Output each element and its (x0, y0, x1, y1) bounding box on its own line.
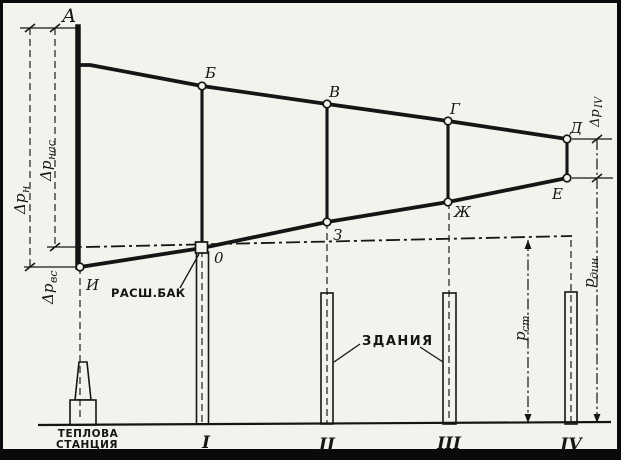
expansion-tank-symbol (196, 242, 208, 253)
point-label-e: Е (551, 185, 563, 203)
svg-text:IV: IV (594, 95, 605, 109)
point-label-g: Г (449, 100, 461, 118)
station-label-line2: СТАНЦИЯ (56, 439, 118, 451)
point-label-o: 0 (214, 249, 224, 267)
expansion-tank-label: РАСШ.БАК (111, 286, 186, 300)
svg-text:Δp: Δp (11, 193, 29, 215)
point-label-a: А (60, 5, 76, 27)
building-numeral-3: III (436, 434, 462, 454)
building-numeral-2: II (318, 435, 336, 455)
building-numeral-1: I (201, 433, 211, 453)
point-label-b: Б (204, 64, 216, 82)
building-numeral-4: IV (559, 435, 583, 455)
svg-text:ст: ст (519, 315, 532, 332)
svg-text:нас: нас (45, 140, 58, 160)
svg-text:н: н (19, 186, 32, 193)
buildings-label: ЗДАНИЯ (362, 334, 434, 349)
svg-text:Δp: Δp (588, 109, 603, 128)
point-label-d: Д (569, 119, 583, 137)
svg-text:дин: дин (588, 258, 601, 279)
svg-text:Δp: Δp (39, 283, 57, 305)
svg-text:вс: вс (47, 270, 60, 283)
point-label-z: З (333, 226, 342, 244)
svg-text:Δp: Δp (37, 160, 55, 182)
point-label-i: И (85, 276, 100, 294)
point-label-zh: Ж (453, 203, 472, 221)
piezometric-diagram: А Б В Г Д Е Ж З И 0 Δp н Δp нас Δp вс Δp… (0, 0, 621, 460)
point-label-v: В (328, 83, 340, 101)
